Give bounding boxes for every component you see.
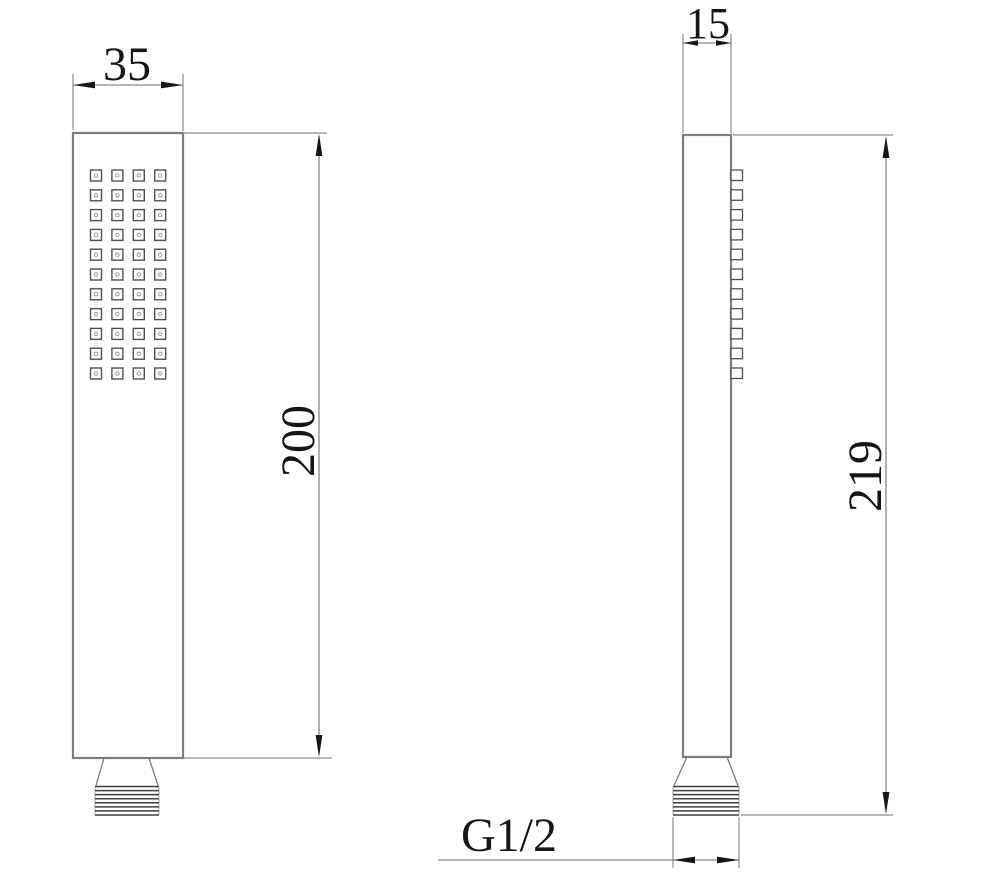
nozzle-square bbox=[133, 170, 144, 181]
nozzle-square bbox=[133, 348, 144, 359]
nozzle-square bbox=[112, 289, 123, 300]
dimension-text-side-length: 219 bbox=[839, 440, 892, 512]
nozzle-bump bbox=[731, 309, 743, 320]
nozzle-square bbox=[112, 328, 123, 339]
nozzle-square bbox=[112, 249, 123, 260]
arrow-down-icon bbox=[316, 735, 323, 757]
nozzle-square bbox=[133, 269, 144, 280]
nozzle-square bbox=[155, 210, 166, 221]
nozzle-square bbox=[133, 229, 144, 240]
nozzle-bump bbox=[731, 348, 743, 359]
arrow-left-icon bbox=[73, 82, 95, 89]
nozzle-square bbox=[91, 190, 102, 201]
side-nozzle-profile bbox=[731, 170, 743, 379]
front-view bbox=[73, 133, 183, 815]
side-connector-taper bbox=[674, 757, 738, 786]
nozzle-square bbox=[155, 249, 166, 260]
nozzle-square bbox=[133, 309, 144, 320]
arrow-right-icon bbox=[717, 857, 739, 864]
nozzle-square bbox=[112, 269, 123, 280]
dimension-front-length: 200 bbox=[183, 133, 332, 758]
arrow-left-icon bbox=[673, 857, 695, 864]
front-view-body bbox=[73, 133, 183, 758]
nozzle-bump bbox=[731, 190, 743, 201]
drawing-canvas: 35 200 15 219 G1/2 bbox=[0, 0, 1000, 876]
nozzle-square bbox=[112, 229, 123, 240]
nozzle-square bbox=[91, 229, 102, 240]
front-thread-fitting bbox=[95, 787, 159, 815]
nozzle-square bbox=[91, 170, 102, 181]
nozzle-square bbox=[91, 210, 102, 221]
nozzle-square bbox=[155, 289, 166, 300]
nozzle-square bbox=[91, 249, 102, 260]
nozzle-square bbox=[91, 269, 102, 280]
nozzle-bump bbox=[731, 249, 743, 260]
dimension-side-length: 219 bbox=[733, 135, 893, 815]
nozzle-square bbox=[155, 328, 166, 339]
thread-spec-label: G1/2 bbox=[461, 809, 557, 862]
nozzle-square bbox=[112, 368, 123, 379]
nozzle-square bbox=[155, 309, 166, 320]
nozzle-square bbox=[155, 269, 166, 280]
nozzle-bump bbox=[731, 229, 743, 240]
nozzle-square bbox=[112, 348, 123, 359]
nozzle-square bbox=[91, 348, 102, 359]
dimension-text-front-width: 35 bbox=[103, 38, 151, 91]
nozzle-square bbox=[155, 368, 166, 379]
arrow-right-icon bbox=[161, 82, 183, 89]
front-connector-taper bbox=[96, 758, 158, 786]
nozzle-square bbox=[155, 190, 166, 201]
nozzle-bump bbox=[731, 170, 743, 181]
nozzle-square bbox=[112, 170, 123, 181]
nozzle-square bbox=[155, 348, 166, 359]
extension-lines bbox=[683, 34, 731, 133]
dimension-text-front-length: 200 bbox=[272, 405, 325, 477]
nozzle-bump bbox=[731, 269, 743, 280]
nozzle-square bbox=[155, 170, 166, 181]
side-view-body bbox=[683, 135, 731, 757]
shower-handset-technical-drawing: 35 200 15 219 G1/2 bbox=[0, 0, 1000, 876]
nozzle-square bbox=[91, 368, 102, 379]
arrow-up-icon bbox=[883, 136, 890, 158]
side-thread-fitting bbox=[673, 787, 739, 815]
nozzle-bump bbox=[731, 328, 743, 339]
nozzle-square bbox=[91, 328, 102, 339]
nozzle-bump bbox=[731, 210, 743, 221]
nozzle-square bbox=[133, 368, 144, 379]
nozzle-square bbox=[112, 190, 123, 201]
nozzle-square bbox=[112, 309, 123, 320]
dimension-front-width: 35 bbox=[73, 38, 183, 131]
nozzle-square bbox=[133, 190, 144, 201]
nozzle-bump bbox=[731, 289, 743, 300]
nozzle-square bbox=[133, 210, 144, 221]
nozzle-square bbox=[91, 289, 102, 300]
arrow-down-icon bbox=[883, 792, 890, 814]
nozzle-bump bbox=[731, 368, 743, 379]
nozzle-square bbox=[91, 309, 102, 320]
nozzle-square bbox=[133, 249, 144, 260]
side-view bbox=[673, 135, 743, 815]
nozzle-square bbox=[155, 229, 166, 240]
nozzle-square bbox=[112, 210, 123, 221]
dimension-thread: G1/2 bbox=[438, 809, 739, 868]
dimension-text-side-depth: 15 bbox=[686, 0, 730, 48]
nozzle-square bbox=[133, 328, 144, 339]
nozzle-square bbox=[133, 289, 144, 300]
dimension-side-depth: 15 bbox=[683, 0, 731, 133]
arrow-up-icon bbox=[316, 134, 323, 156]
